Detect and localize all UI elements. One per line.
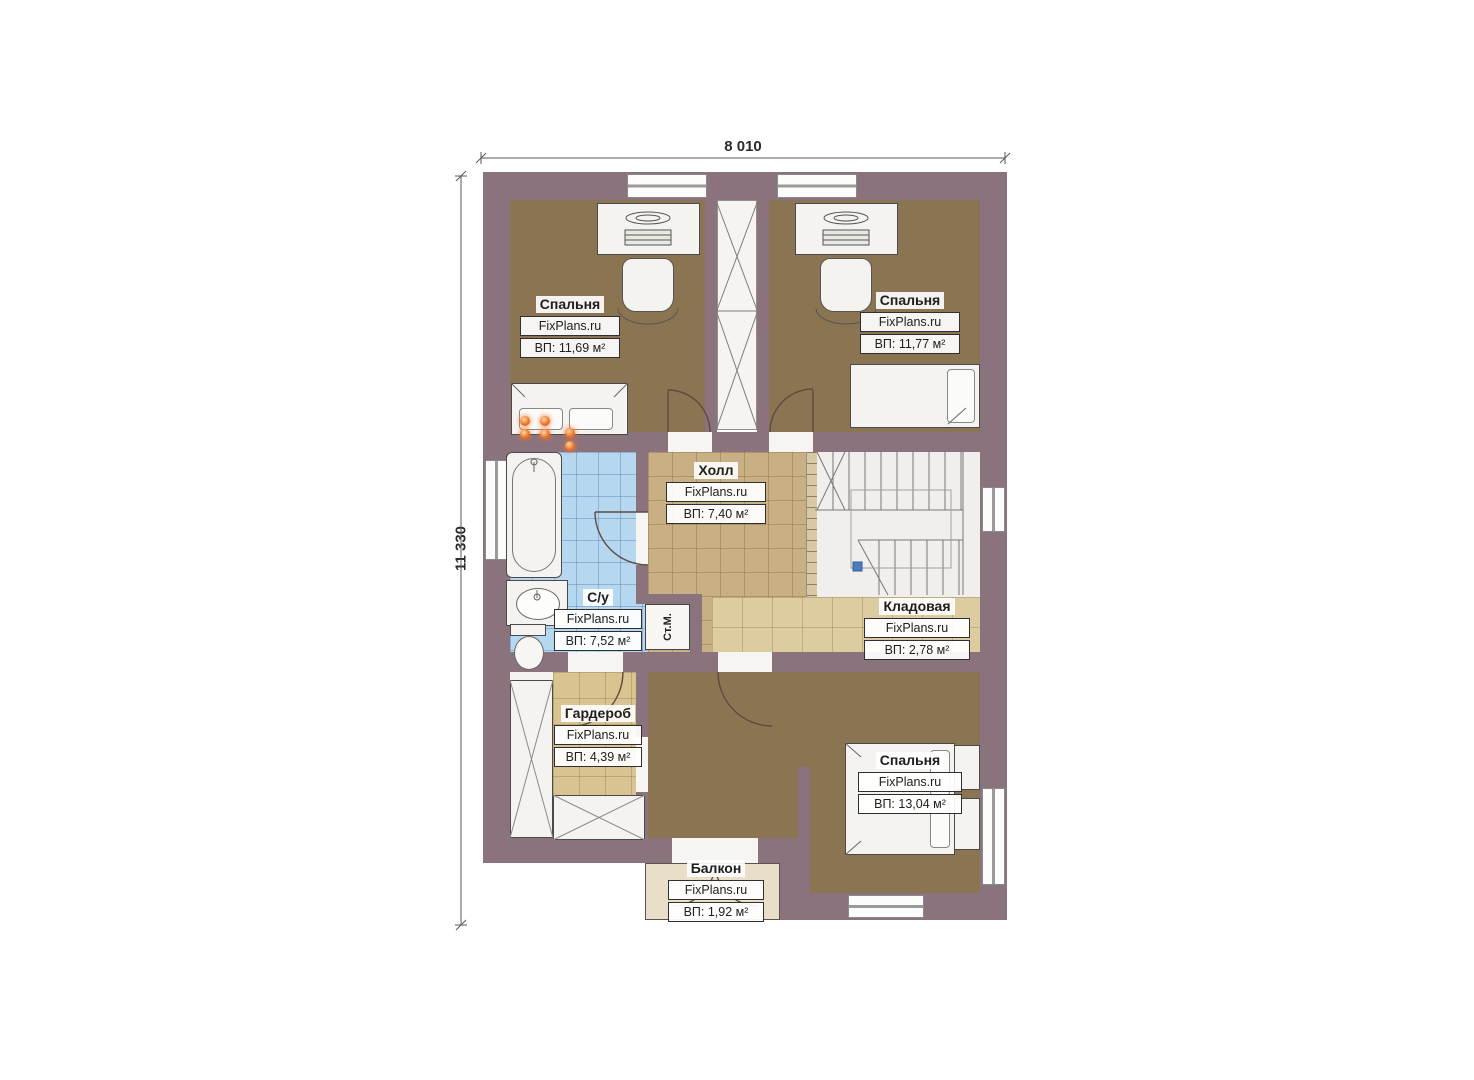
room-name: Кладовая [879, 598, 954, 615]
room-brand: FixPlans.ru [666, 482, 766, 502]
room-brand: FixPlans.ru [554, 609, 642, 629]
riser-dot-icon [520, 416, 530, 426]
stair-marker [853, 562, 862, 571]
room-brand: FixPlans.ru [858, 772, 962, 792]
room-name: Гардероб [561, 705, 635, 722]
room-name: Спальня [876, 752, 944, 769]
room-bedroom-2-label: Спальня FixPlans.ru ВП: 11,77 м² [860, 292, 960, 354]
room-area: ВП: 13,04 м² [858, 794, 962, 814]
room-brand: FixPlans.ru [554, 725, 642, 745]
room-name: Холл [694, 462, 737, 479]
room-area: ВП: 7,52 м² [554, 631, 642, 651]
room-bathroom-label: С/у FixPlans.ru ВП: 7,52 м² [554, 589, 642, 651]
riser-dot-icon [540, 429, 550, 439]
room-bedroom-1-label: Спальня FixPlans.ru ВП: 11,69 м² [520, 296, 620, 358]
floor-plan-canvas: 8 010 11 330 [0, 0, 1474, 1080]
room-name: С/у [583, 589, 613, 606]
riser-dot-icon [565, 428, 575, 438]
room-area: ВП: 7,40 м² [666, 504, 766, 524]
room-name: Спальня [876, 292, 944, 309]
room-brand: FixPlans.ru [668, 880, 764, 900]
room-storage-label: Кладовая FixPlans.ru ВП: 2,78 м² [864, 598, 970, 660]
room-hall-label: Холл FixPlans.ru ВП: 7,40 м² [666, 462, 766, 524]
room-area: ВП: 11,69 м² [520, 338, 620, 358]
room-brand: FixPlans.ru [860, 312, 960, 332]
room-wardrobe-label: Гардероб FixPlans.ru ВП: 4,39 м² [554, 705, 642, 767]
room-area: ВП: 1,92 м² [668, 902, 764, 922]
riser-dot-icon [565, 441, 575, 451]
washing-machine-label: Ст.М. [661, 613, 673, 641]
room-bedroom-3-label: Спальня FixPlans.ru ВП: 13,04 м² [858, 752, 962, 814]
washing-machine: Ст.М. [645, 604, 690, 650]
room-balcony-label: Балкон FixPlans.ru ВП: 1,92 м² [668, 860, 764, 922]
room-area: ВП: 2,78 м² [864, 640, 970, 660]
riser-dot-icon [520, 429, 530, 439]
room-area: ВП: 11,77 м² [860, 334, 960, 354]
room-name: Балкон [687, 860, 746, 877]
room-area: ВП: 4,39 м² [554, 747, 642, 767]
room-brand: FixPlans.ru [864, 618, 970, 638]
room-brand: FixPlans.ru [520, 316, 620, 336]
room-name: Спальня [536, 296, 604, 313]
riser-dot-icon [540, 416, 550, 426]
